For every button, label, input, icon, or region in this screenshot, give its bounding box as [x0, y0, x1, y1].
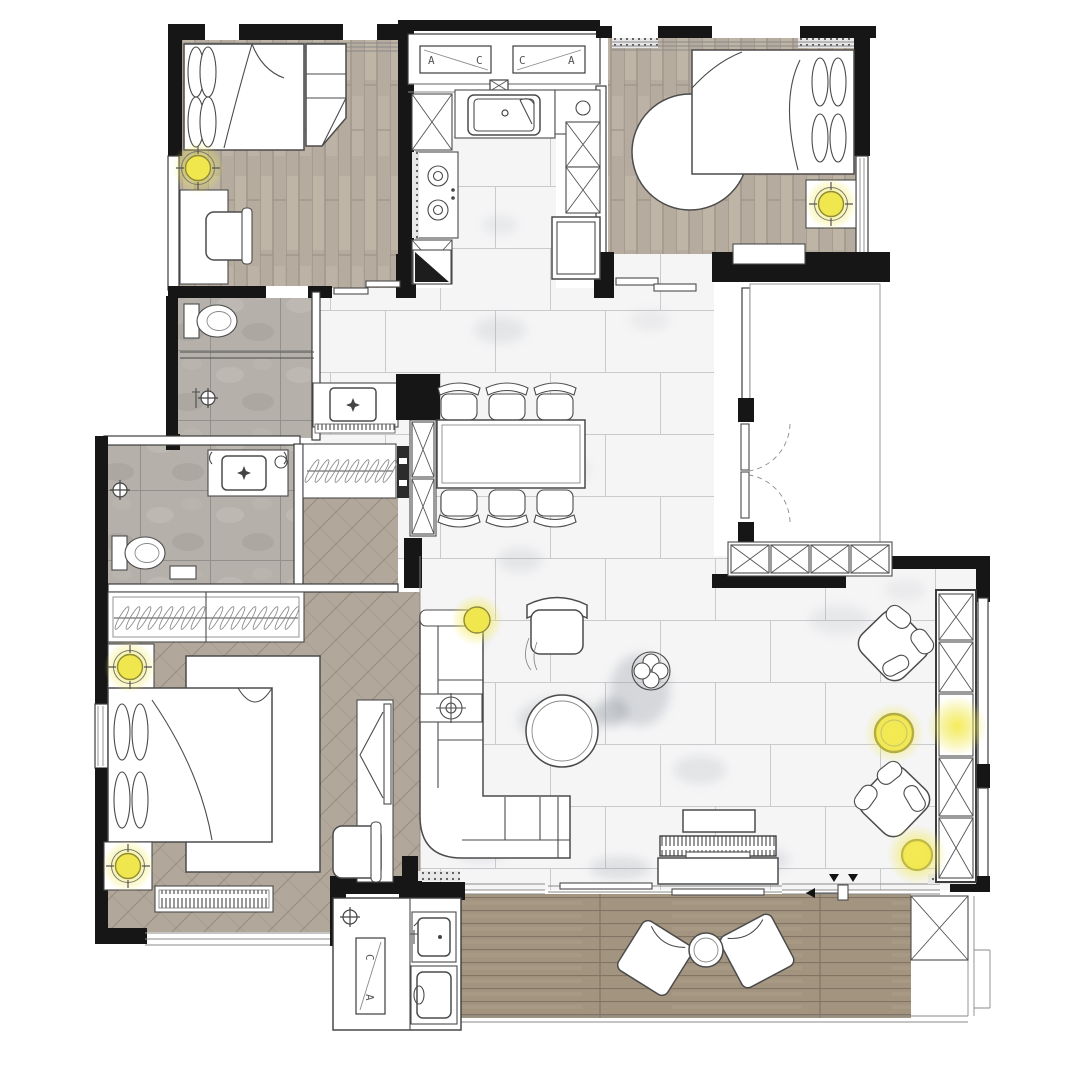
refrigerator-icon [552, 217, 600, 279]
bed-double-icon [108, 688, 272, 842]
wardrobe-hanging-icon [108, 592, 304, 642]
shoe-cabinet-x [728, 542, 892, 576]
toilet-icon [184, 304, 237, 338]
structural-column [396, 374, 440, 420]
corridor-marble-floor [610, 254, 714, 562]
dining-table-icon [437, 420, 585, 488]
marker-letter: A [568, 54, 575, 67]
door-leaf [741, 424, 749, 470]
bed-double-icon [692, 50, 854, 174]
side-table-lamp-2 [887, 825, 947, 885]
hall-vanity [313, 383, 398, 433]
section-marker-left: A C [420, 46, 491, 73]
bed-double-icon [184, 44, 304, 150]
washing-machine-icon [411, 966, 457, 1024]
floor-plan-image: A C C A [0, 0, 1080, 1080]
vanity-basin-icon [208, 450, 288, 496]
marker-letter: A [428, 54, 435, 67]
bedroom3-nightstand-lamp [805, 178, 857, 230]
window-bench-icon [155, 886, 273, 912]
closet-herringbone-floor [302, 498, 398, 592]
coffee-table-icon [526, 695, 598, 767]
marker-letter: A [363, 994, 376, 1001]
marker-letter: C [519, 54, 526, 67]
bedroom2-floor-lamp [172, 142, 224, 194]
window-mullion-icon [490, 80, 508, 91]
marker-letter: C [363, 954, 376, 961]
kitchen-sink-icon [455, 90, 555, 138]
master-nightstand-lamp-1 [104, 641, 156, 693]
section-marker-right: C A [513, 46, 585, 73]
balcony-cabinet-x [911, 896, 968, 960]
door-leaf [741, 472, 749, 518]
desk-chair-icon [206, 208, 252, 264]
sofa-corner-lamp [451, 594, 503, 646]
laundry-sink-icon [410, 912, 456, 962]
toilet-icon [112, 536, 165, 570]
kitchen-marble-floor [452, 136, 556, 296]
desk-chair-icon [333, 822, 381, 882]
tv-console-icon [658, 858, 778, 884]
side-table-lamp-1 [864, 703, 924, 763]
master-nightstand-lamp-2 [102, 840, 154, 892]
shelf-niche-light [927, 696, 987, 756]
closet-hanging-rack [303, 444, 409, 498]
section-marker-balcony: C A [356, 938, 385, 1014]
floor-plan-canvas: A C C A [0, 0, 1080, 1080]
marker-letter: C [476, 54, 483, 67]
floating-shelf-icon [683, 810, 755, 832]
bed-bench-icon [733, 244, 805, 264]
bath-mat-icon [170, 566, 196, 579]
tall-cabinet-x [410, 420, 436, 536]
dining-area [437, 383, 585, 527]
closet-side-shelf [397, 446, 409, 498]
round-deck-table-icon [689, 933, 723, 967]
gas-stove-icon [412, 152, 458, 238]
